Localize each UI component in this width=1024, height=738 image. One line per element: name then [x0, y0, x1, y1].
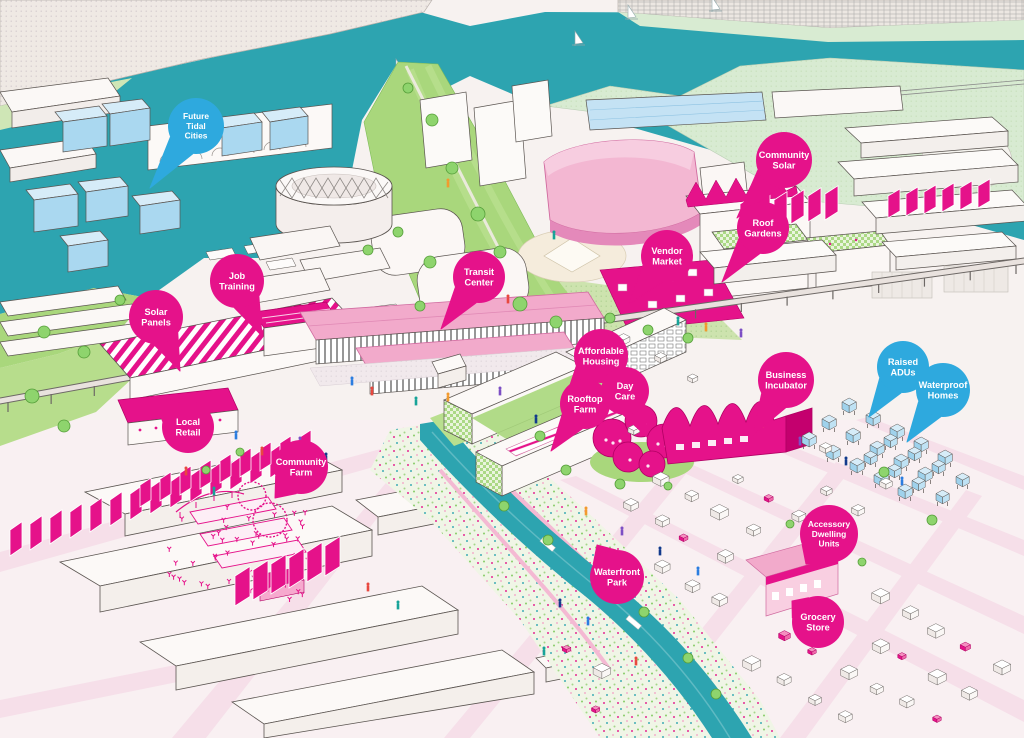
person-figure [351, 377, 354, 386]
person-figure [371, 387, 374, 396]
callout-label: VendorMarket [651, 246, 683, 267]
tree-icon [639, 607, 649, 617]
person-figure [235, 431, 238, 440]
person-figure [397, 601, 400, 610]
tree-icon [927, 515, 937, 525]
tree-icon [550, 316, 562, 328]
person-figure [635, 657, 638, 666]
tree-icon [415, 301, 425, 311]
tree-icon [643, 325, 653, 335]
tree-icon [202, 466, 210, 474]
illustrated-city-map: FutureTidalCitiesCommunitySolarRoofGarde… [0, 0, 1024, 738]
tree-icon [786, 520, 794, 528]
tree-icon [426, 114, 438, 126]
tree-icon [858, 558, 866, 566]
person-figure [659, 547, 662, 556]
tree-icon [25, 389, 39, 403]
tree-icon [683, 333, 693, 343]
person-figure [543, 647, 546, 656]
tree-icon [535, 431, 545, 441]
person-figure [507, 295, 510, 304]
callout-label: TransitCenter [464, 267, 494, 288]
tree-icon [711, 689, 721, 699]
tree-icon [393, 227, 403, 237]
person-figure [799, 437, 802, 446]
tree-icon [78, 346, 90, 358]
person-figure [845, 457, 848, 466]
callout-label: SolarPanels [141, 307, 171, 328]
person-figure [585, 507, 588, 516]
tree-icon [561, 465, 571, 475]
person-figure [901, 477, 904, 486]
tree-icon [543, 535, 553, 545]
person-figure [740, 329, 743, 338]
person-figure [447, 393, 450, 402]
tree-icon [471, 207, 485, 221]
person-figure [587, 617, 590, 626]
tree-icon [446, 162, 458, 174]
callout-label: RaisedADUs [888, 357, 918, 378]
person-figure [621, 527, 624, 536]
person-figure [535, 415, 538, 424]
person-figure [367, 583, 370, 592]
tree-icon [424, 256, 436, 268]
callout-label: BusinessIncubator [765, 370, 807, 391]
tree-icon [494, 246, 506, 258]
tree-icon [513, 297, 527, 311]
tree-icon [38, 326, 50, 338]
tree-icon [236, 448, 244, 456]
tree-icon [664, 482, 672, 490]
tree-icon [115, 295, 125, 305]
tree-icon [615, 479, 625, 489]
person-figure [447, 179, 450, 188]
person-figure [553, 231, 556, 240]
callout-label: LocalRetail [175, 417, 200, 438]
callout-label: DayCare [615, 381, 635, 402]
tree-icon [499, 501, 509, 511]
person-figure [677, 317, 680, 326]
person-figure [499, 387, 502, 396]
person-figure [261, 447, 264, 456]
person-figure [415, 397, 418, 406]
person-figure [697, 567, 700, 576]
tree-icon [403, 83, 413, 93]
callout-label: FutureTidalCities [183, 111, 209, 141]
person-figure [559, 599, 562, 608]
tree-icon [605, 313, 615, 323]
tree-icon [879, 467, 889, 477]
person-figure [185, 467, 188, 476]
person-figure [705, 323, 708, 332]
person-figure [213, 487, 216, 496]
callout-grocery-store: GroceryStore [792, 596, 844, 648]
tree-icon [363, 245, 373, 255]
callout-label: AffordableHousing [578, 346, 624, 367]
tree-icon [58, 420, 70, 432]
tree-icon [683, 653, 693, 663]
